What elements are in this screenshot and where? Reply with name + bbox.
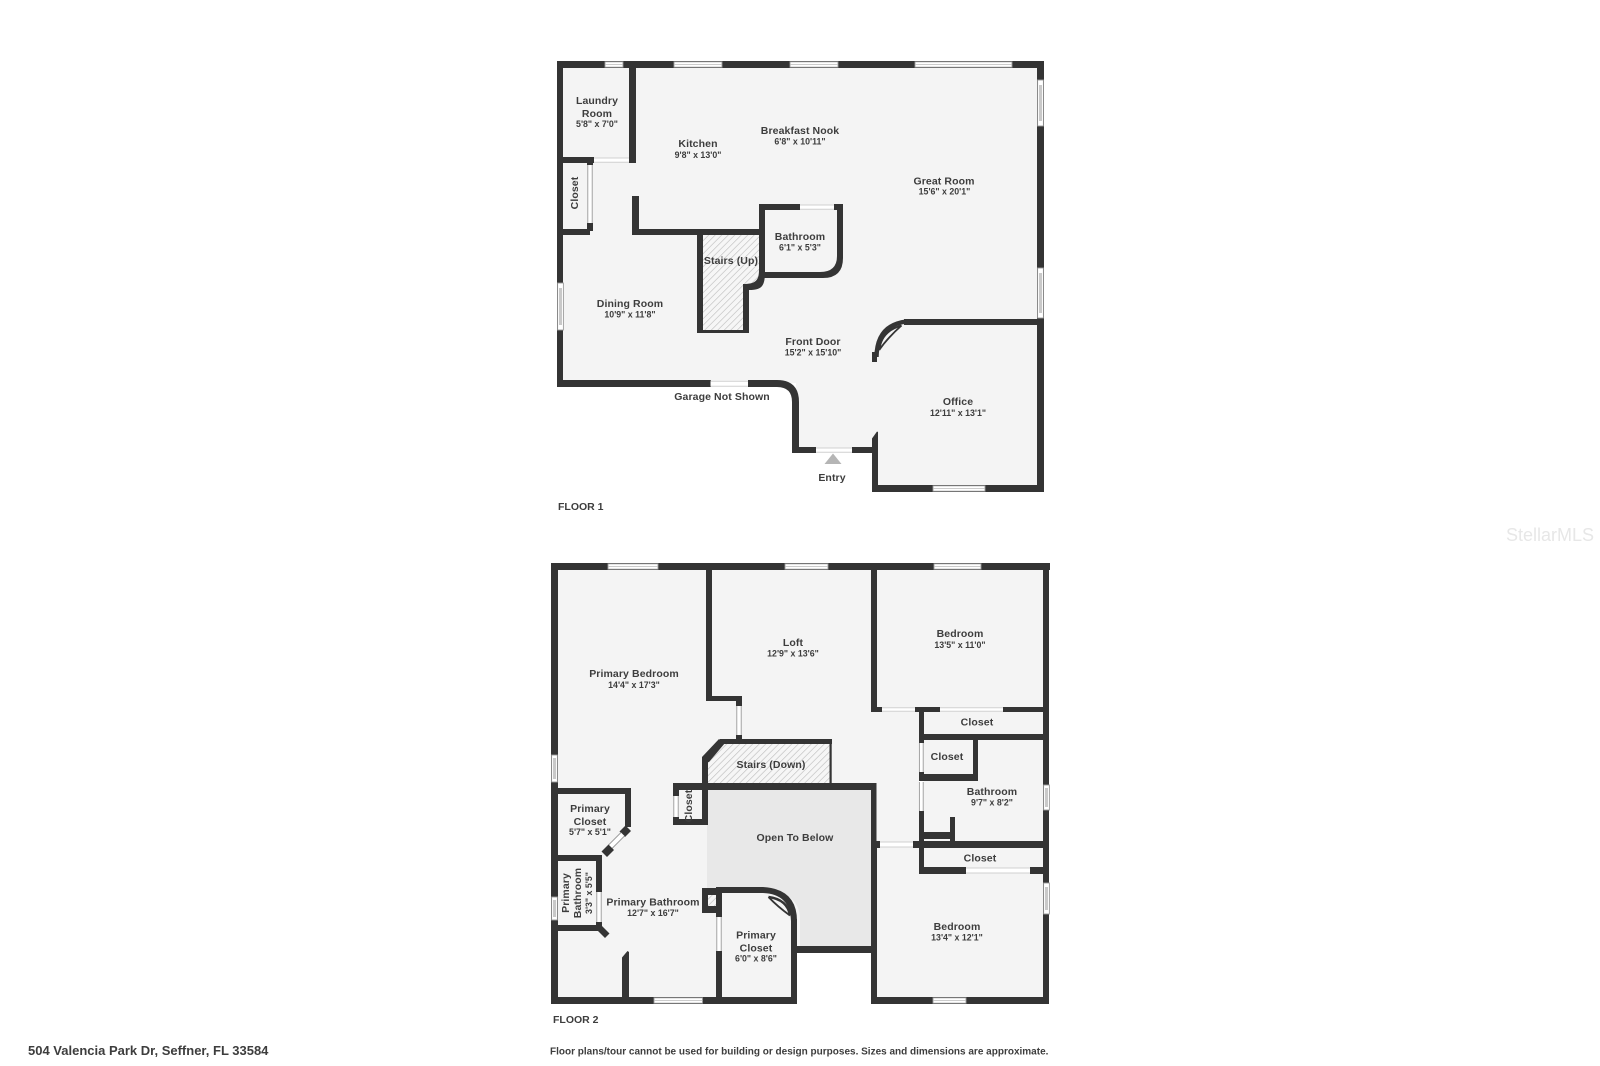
svg-text:Closet: Closet <box>931 751 964 763</box>
svg-text:15'2" x 15'10": 15'2" x 15'10" <box>785 348 842 358</box>
svg-text:Breakfast Nook: Breakfast Nook <box>761 125 839 137</box>
svg-text:5'8" x 7'0": 5'8" x 7'0" <box>576 119 618 129</box>
svg-text:Primary: Primary <box>560 873 572 913</box>
svg-text:504 Valencia Park Dr, Seffner,: 504 Valencia Park Dr, Seffner, FL 33584 <box>28 1043 269 1058</box>
svg-text:Dining Room: Dining Room <box>597 298 663 310</box>
svg-text:Bedroom: Bedroom <box>937 628 984 640</box>
svg-text:9'7" x 8'2": 9'7" x 8'2" <box>971 798 1013 808</box>
svg-text:FLOOR 2: FLOOR 2 <box>553 1014 599 1026</box>
svg-text:Primary Bedroom: Primary Bedroom <box>589 668 679 680</box>
svg-text:6'1" x 5'3": 6'1" x 5'3" <box>779 243 821 253</box>
svg-text:Front Door: Front Door <box>785 336 840 348</box>
svg-text:Entry: Entry <box>818 472 845 484</box>
svg-text:Open To Below: Open To Below <box>757 832 835 844</box>
svg-text:Primary Bathroom: Primary Bathroom <box>606 897 699 909</box>
svg-text:FLOOR 1: FLOOR 1 <box>558 501 604 513</box>
svg-text:9'8" x 13'0": 9'8" x 13'0" <box>675 150 722 160</box>
svg-text:6'0" x 8'6": 6'0" x 8'6" <box>735 954 777 964</box>
svg-text:Office: Office <box>943 396 973 408</box>
svg-text:12'7" x 16'7": 12'7" x 16'7" <box>627 908 679 918</box>
svg-text:3'3" x 5'5": 3'3" x 5'5" <box>584 872 594 914</box>
svg-text:Closet: Closet <box>683 789 695 822</box>
svg-text:Primary: Primary <box>736 930 776 942</box>
svg-text:Closet: Closet <box>964 853 997 865</box>
svg-text:Stairs (Down): Stairs (Down) <box>737 759 806 771</box>
svg-text:12'11" x 13'1": 12'11" x 13'1" <box>930 408 986 418</box>
svg-text:Loft: Loft <box>783 637 804 649</box>
svg-text:Floor plans/tour cannot be use: Floor plans/tour cannot be used for buil… <box>550 1047 1049 1058</box>
svg-text:Closet: Closet <box>961 717 994 729</box>
svg-text:13'5" x 11'0": 13'5" x 11'0" <box>934 640 985 650</box>
svg-text:12'9" x 13'6": 12'9" x 13'6" <box>767 649 819 659</box>
svg-text:Bedroom: Bedroom <box>934 921 981 933</box>
svg-text:5'7" x 5'1": 5'7" x 5'1" <box>569 827 611 837</box>
svg-text:Kitchen: Kitchen <box>678 138 717 150</box>
svg-text:14'4" x 17'3": 14'4" x 17'3" <box>608 680 660 690</box>
svg-text:Stairs (Up): Stairs (Up) <box>704 255 758 267</box>
svg-text:15'6" x 20'1": 15'6" x 20'1" <box>919 187 971 197</box>
svg-text:Laundry: Laundry <box>576 95 618 107</box>
svg-text:StellarMLS: StellarMLS <box>1506 525 1594 545</box>
svg-text:6'8" x 10'11": 6'8" x 10'11" <box>774 137 825 147</box>
svg-text:Bathroom: Bathroom <box>775 231 825 243</box>
svg-text:Bathroom: Bathroom <box>967 786 1017 798</box>
svg-text:Primary: Primary <box>570 803 610 815</box>
svg-text:10'9" x 11'8": 10'9" x 11'8" <box>604 310 655 320</box>
svg-text:Bathroom: Bathroom <box>572 868 584 918</box>
svg-text:Closet: Closet <box>569 176 581 209</box>
svg-text:13'4" x 12'1": 13'4" x 12'1" <box>931 933 983 943</box>
svg-text:Garage Not Shown: Garage Not Shown <box>674 391 770 403</box>
